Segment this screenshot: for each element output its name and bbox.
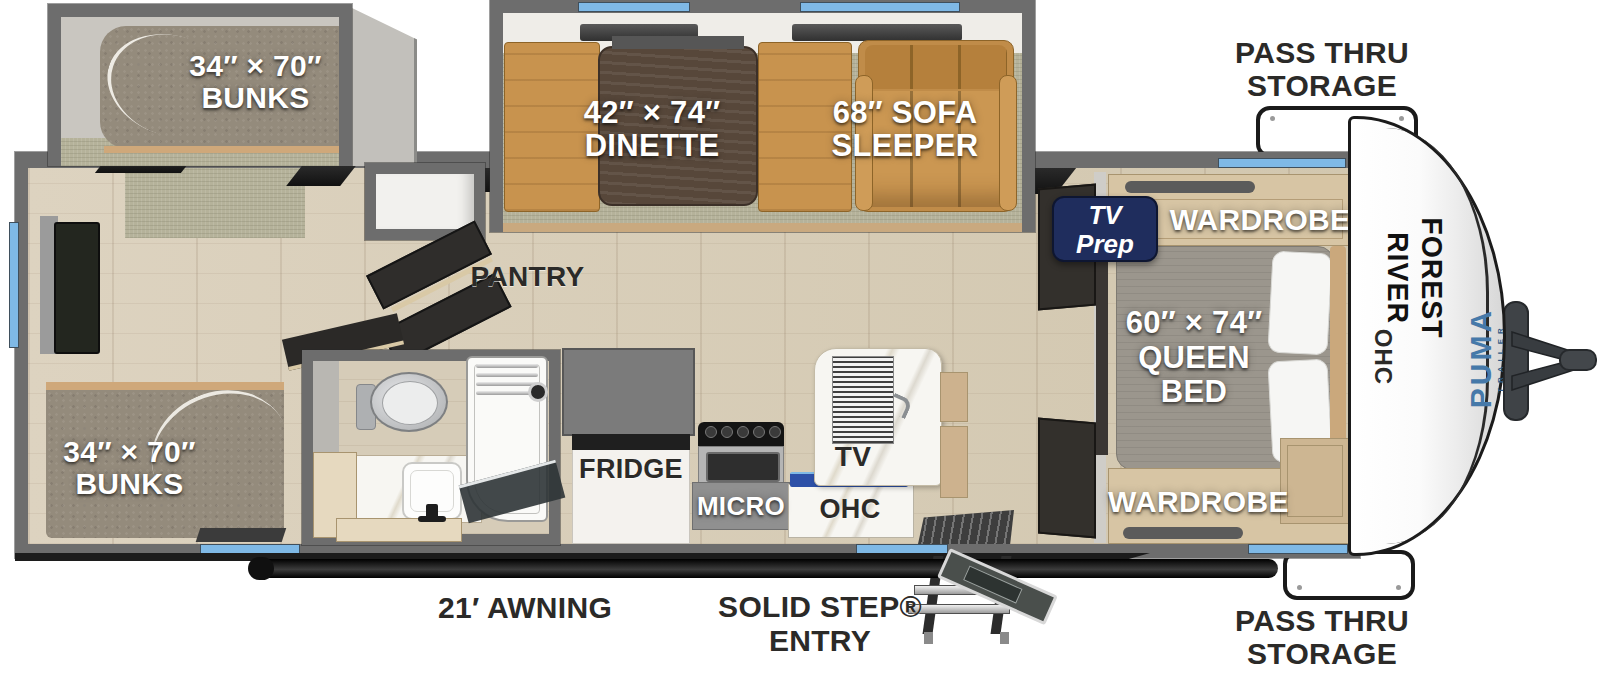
bedroom-dresser (1280, 438, 1350, 524)
pass-thru-top-line2: STORAGE (1222, 69, 1422, 102)
puma-word: PUMA (1466, 293, 1496, 423)
bunks-top-word: BUNKS (168, 82, 343, 114)
fridge (572, 434, 690, 544)
bunks-bottom-label: 34″ × 70″ BUNKS (42, 436, 217, 501)
bunk-slide-side-wall (352, 8, 417, 166)
wardrobe-bottom-bar (1123, 527, 1243, 539)
pantry-word: PANTRY (471, 261, 585, 292)
sofa-dims: 68″ SOFA (815, 96, 995, 129)
stove-knob (705, 426, 717, 438)
bedroom-ohc-word: OHC (1370, 329, 1397, 385)
window-dinette-slide-1 (578, 2, 690, 12)
wardrobe-top-label: WARDROBE (1150, 204, 1370, 236)
pass-thru-top-line1: PASS THRU (1222, 36, 1422, 69)
micro-label: MICRO (692, 492, 790, 520)
pantry-label: PANTRY (440, 262, 615, 292)
kitchen-tv-label: TV (818, 442, 888, 472)
shower-rail (476, 364, 538, 368)
kitchen-ohc-word: OHC (820, 494, 881, 524)
dinette-dims: 42″ × 74″ (562, 96, 742, 129)
awning-word: 21′ AWNING (438, 591, 612, 624)
kitchen-cabinet-upper (940, 372, 968, 422)
entry-step-foot (1000, 632, 1009, 644)
sofa-word: SLEEPER (815, 129, 995, 162)
stove (698, 422, 784, 484)
bed-headboard (1330, 246, 1346, 470)
bedroom-sliding-door (1096, 260, 1108, 455)
wardrobe-rod (1125, 181, 1255, 193)
stove-knob (769, 426, 781, 438)
kitchen-cabinet-lower (940, 426, 968, 498)
pass-thru-bottom-line2: STORAGE (1222, 637, 1422, 670)
window-entry-side (856, 544, 948, 554)
forest-river-word: FOREST RIVER (1382, 217, 1449, 338)
stove-knob (721, 426, 733, 438)
wardrobe-bottom-label: WARDROBE (1108, 486, 1288, 518)
tv-prep-line2: Prep (1054, 230, 1156, 259)
dresser-inner-line (1287, 445, 1343, 517)
fridge-label: FRIDGE (572, 455, 690, 484)
awning-end-cap (248, 557, 274, 580)
rear-room-carpet (125, 168, 305, 238)
dinette-word: DINETTE (562, 129, 742, 162)
shower-rail (476, 373, 538, 377)
window-bedroom-top (1218, 158, 1346, 168)
toilet-seat (382, 381, 438, 425)
window-bedroom-bottom (1248, 544, 1348, 554)
window-rear-wall (9, 222, 19, 348)
bunk-bottom-base (196, 528, 287, 542)
dinette-table-mount (612, 36, 744, 49)
window-rear-bottom (200, 544, 300, 554)
queen-bed-dims: 60″ × 74″ (1108, 306, 1280, 341)
bedroom-cabinet-bottom (1038, 417, 1096, 538)
fridge-enclosure (562, 348, 695, 436)
puma-logo: PUMA TRAILER (1466, 293, 1512, 423)
pass-thru-bottom-label: PASS THRU STORAGE (1222, 604, 1422, 670)
pass-thru-top-label: PASS THRU STORAGE (1222, 36, 1422, 102)
dinette-label: 42″ × 74″ DINETTE (562, 96, 742, 163)
wardrobe-top-word: WARDROBE (1170, 203, 1351, 236)
hitch-tongue (1498, 296, 1600, 426)
stove-knob (753, 426, 765, 438)
rear-tv (54, 222, 100, 354)
kitchen-tv-grille (832, 356, 894, 444)
queen-bed-label: 60″ × 74″ QUEEN BED (1108, 306, 1280, 410)
fridge-word: FRIDGE (579, 454, 683, 484)
micro-word: MICRO (697, 491, 785, 521)
closet-interior (376, 174, 474, 229)
kitchen-tv-word: TV (835, 441, 871, 472)
dinette-slideout-threshold (503, 223, 1022, 232)
bunks-top-label: 34″ × 70″ BUNKS (168, 50, 343, 115)
wardrobe-bottom-word: WARDROBE (1108, 485, 1289, 518)
awning-roller (252, 559, 1278, 578)
queen-bed-word1: QUEEN (1108, 341, 1280, 376)
queen-bed-word2: BED (1108, 375, 1280, 410)
awning-label: 21′ AWNING (405, 592, 645, 624)
stove-knob (737, 426, 749, 438)
bunks-bottom-dims: 34″ × 70″ (42, 436, 217, 468)
bedroom-ohc-label: OHC (1370, 327, 1396, 387)
entry-line1: SOLID STEP® (698, 590, 942, 624)
sofa-label: 68″ SOFA SLEEPER (815, 96, 995, 163)
tv-prep-line1: TV (1054, 201, 1156, 230)
sofa-backrest (865, 45, 1007, 89)
entry-label: SOLID STEP® ENTRY (698, 590, 942, 657)
entry-line2: ENTRY (698, 624, 942, 658)
tv-prep-badge: TV Prep (1052, 196, 1158, 262)
shower-head-icon (528, 382, 548, 402)
forest-river-logo: FOREST RIVER (1415, 176, 1449, 379)
puma-sub-word: TRAILER (1497, 293, 1505, 423)
stove-oven-window (706, 452, 780, 482)
bunks-top-dims: 34″ × 70″ (168, 50, 343, 82)
shower-rail (476, 382, 538, 386)
pass-thru-bottom-line1: PASS THRU (1222, 604, 1422, 637)
sink-faucet-handle (418, 516, 446, 522)
sofa-wall-mount (792, 24, 962, 41)
rv-floorplan: 34″ × 70″ BUNKS 34″ × 70″ BUNKS 42″ × 74… (0, 0, 1600, 691)
window-dinette-slide-2 (800, 2, 960, 12)
bunk-top-trim (104, 146, 339, 153)
kitchen-ohc-label: OHC (788, 495, 912, 524)
bunks-bottom-word: BUNKS (42, 468, 217, 500)
sofa-armrest-right (999, 75, 1017, 211)
fridge-top-panel (572, 434, 690, 450)
